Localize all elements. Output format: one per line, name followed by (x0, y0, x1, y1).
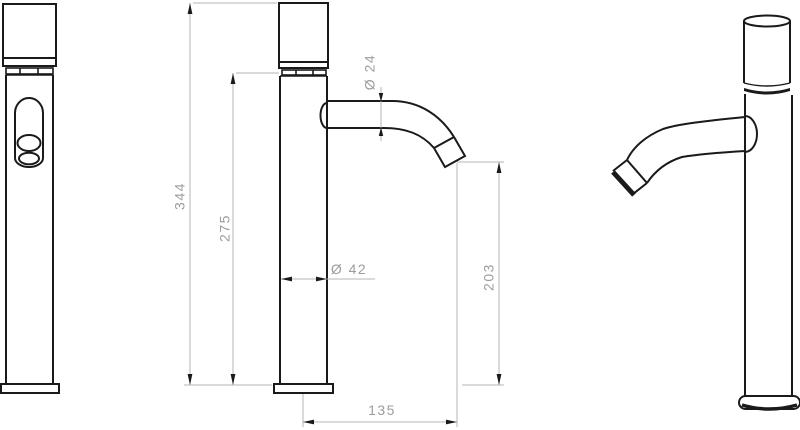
perspective-trim-ring (744, 88, 790, 95)
front-spout-opening (15, 98, 43, 167)
arrowhead-down-icon (188, 374, 193, 385)
arrowhead-down-icon (231, 374, 236, 385)
arrowhead-left-icon (281, 277, 292, 282)
dimension-spout-outlet-height-label: 203 (481, 263, 497, 291)
arrowhead-right-icon (446, 420, 457, 425)
perspective-spout (613, 116, 757, 195)
arrowhead-left-icon (303, 420, 314, 425)
perspective-spout-outlet-rim (613, 172, 634, 195)
arrowhead-right-icon (316, 277, 327, 282)
front-base-plate (1, 384, 59, 393)
arrowhead-up-icon (497, 162, 502, 173)
side-neck-band (282, 70, 326, 75)
arrowhead-down-icon (497, 374, 502, 385)
perspective-body (745, 94, 792, 396)
side-body (280, 76, 327, 384)
front-neck-band (6, 68, 53, 74)
front-handle-cap (3, 4, 56, 66)
front-body (6, 75, 53, 384)
dimension-total-height-label: 344 (172, 182, 188, 210)
arrowhead-up-icon (231, 73, 236, 84)
side-base-plate (274, 384, 333, 393)
front-view (1, 4, 59, 393)
dimensions: 344 275 Ø 24 Ø 42 (172, 3, 504, 427)
perspective-base-flange (739, 396, 800, 409)
side-spout (321, 101, 466, 167)
arrowhead-up-icon (188, 3, 193, 14)
dimension-total-height: 344 (172, 3, 277, 385)
side-handle-cap (279, 3, 328, 68)
perspective-view (613, 16, 800, 410)
dimension-body-diameter-label: Ø 42 (331, 261, 367, 277)
technical-drawing-page: 344 275 Ø 24 Ø 42 (0, 0, 800, 430)
perspective-handle-cap (744, 16, 790, 87)
dimension-spout-outlet-height: 203 (457, 162, 504, 385)
dimension-body-height-label: 275 (217, 214, 233, 242)
perspective-spout-joint-arc (745, 116, 757, 152)
dimension-spout-reach-label: 135 (368, 402, 396, 418)
faucet-technical-drawing: 344 275 Ø 24 Ø 42 (0, 0, 800, 430)
dimension-spout-diameter-label: Ø 24 (362, 54, 378, 90)
dimension-body-height: 275 (217, 73, 279, 385)
